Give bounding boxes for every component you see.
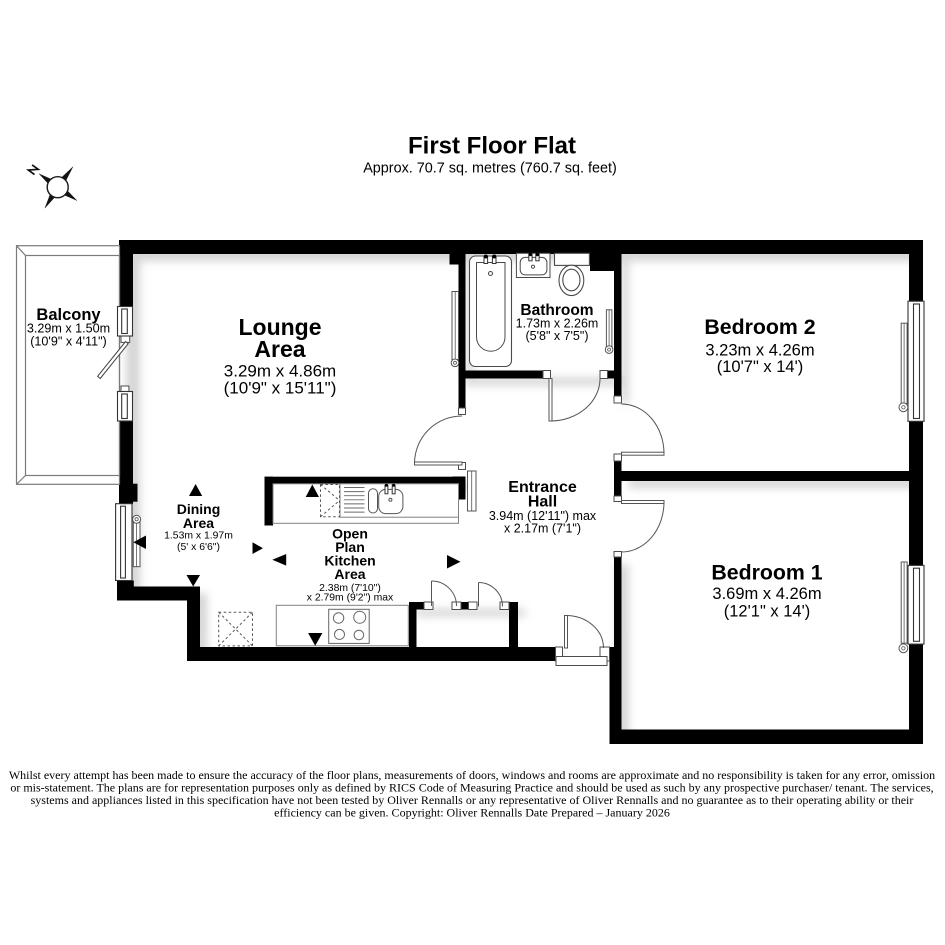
svg-text:3.23m x 4.26m: 3.23m x 4.26m [705, 342, 814, 360]
svg-text:(12'1" x 14'): (12'1" x 14') [724, 603, 810, 621]
svg-text:First Floor Flat: First Floor Flat [408, 133, 576, 160]
svg-text:Area: Area [334, 566, 365, 582]
svg-text:Bedroom 2: Bedroom 2 [704, 315, 815, 339]
svg-text:efficiency can be given. Copyr: efficiency can be given. Copyright: Oliv… [274, 806, 670, 820]
svg-text:3.29m x 1.50m: 3.29m x 1.50m [27, 322, 110, 336]
svg-text:(10'9" x 15'11"): (10'9" x 15'11") [224, 379, 337, 398]
svg-text:Bedroom 1: Bedroom 1 [711, 561, 822, 585]
svg-text:(10'7" x 14'): (10'7" x 14') [717, 358, 803, 376]
svg-text:Approx. 70.7 sq. metres (760.7: Approx. 70.7 sq. metres (760.7 sq. feet) [363, 161, 617, 177]
svg-text:x 2.79m (9'2") max: x 2.79m (9'2") max [307, 593, 394, 604]
svg-text:(10'9" x 4'11"): (10'9" x 4'11") [30, 335, 107, 349]
svg-text:3.69m x 4.26m: 3.69m x 4.26m [712, 585, 821, 603]
svg-text:(5'8" x 7'5"): (5'8" x 7'5") [526, 329, 589, 343]
svg-text:1.53m x 1.97m: 1.53m x 1.97m [164, 531, 233, 542]
svg-text:Hall: Hall [528, 494, 557, 511]
svg-text:Area: Area [254, 336, 305, 362]
svg-text:Area: Area [183, 515, 214, 531]
svg-text:x 2.17m (7'1"): x 2.17m (7'1") [504, 522, 581, 536]
svg-text:(5' x 6'6"): (5' x 6'6") [177, 542, 220, 553]
